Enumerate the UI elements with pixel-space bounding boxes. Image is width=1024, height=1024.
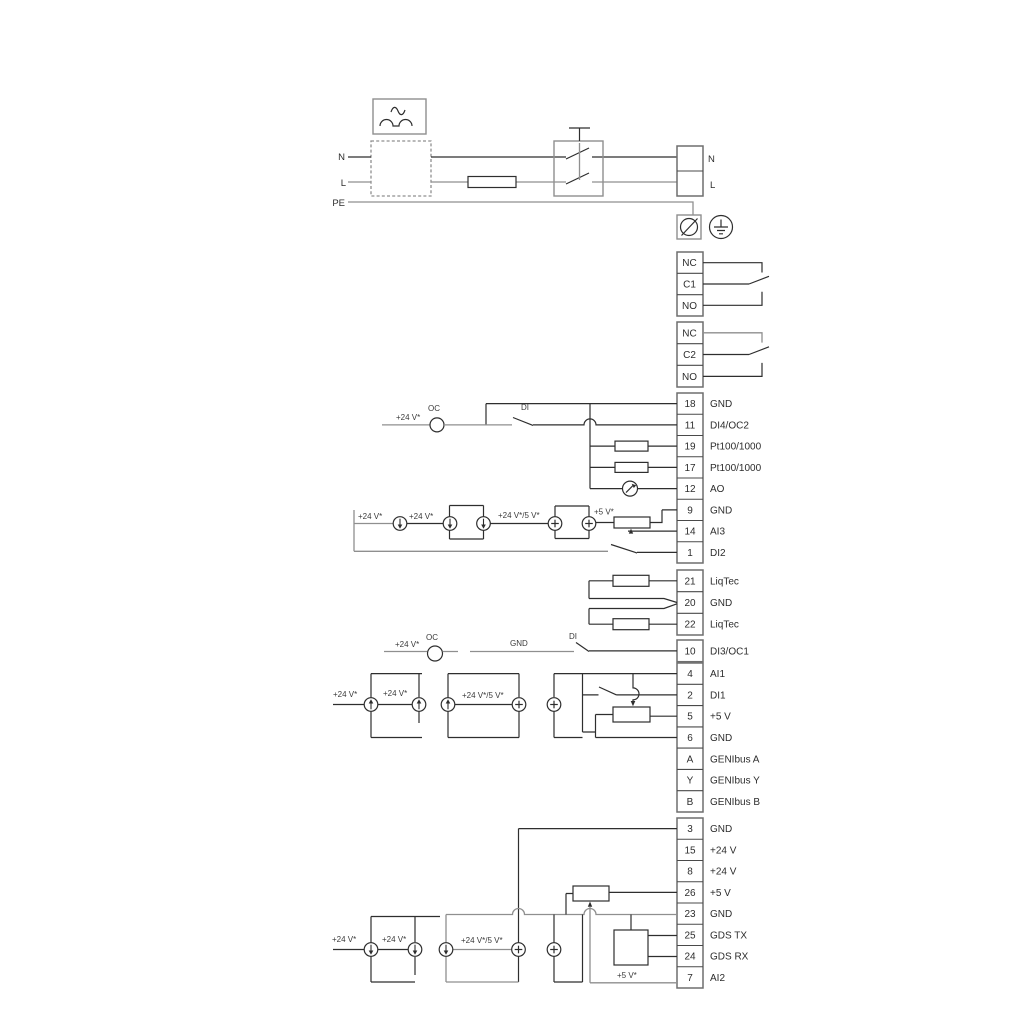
analog-output [590,481,677,496]
terminal-2: 2 [687,690,693,701]
gnd3-wire [519,829,678,982]
current-source-icon [477,517,491,531]
current-source-icon [441,698,455,712]
liqtec-sensor-2 [613,619,649,630]
terminal-9: 9 [687,505,693,516]
n-left-label: N [338,152,345,163]
v24-label: +24 V* [409,512,433,521]
ai2-gds-wiring: +24 V* +24 V* +24 V*/5 V* +5 V* [332,829,677,983]
l-switch-blade [566,173,589,184]
di-label: DI [569,632,577,641]
label-19: Pt100/1000 [710,442,762,453]
liqtec-sensor-1 [613,575,649,586]
terminal-strip-c: 3 15 8 26 23 25 24 7 GND +24 V +24 V +5 … [677,818,749,988]
n-right-label: N [708,154,715,165]
label-1: DI2 [710,548,726,559]
relay1-block: NC C1 NO [677,252,769,316]
label-22: LiqTec [710,620,739,631]
terminal-12: 12 [684,484,696,495]
terminal-Y: Y [687,776,694,787]
terminal-6: 6 [687,733,693,744]
v24-label-r1: +24 V* [396,413,420,422]
terminal-17: 17 [684,463,696,474]
terminal-1: 1 [687,548,693,559]
label-B: GENIbus B [710,797,760,808]
l-right-label: L [710,180,715,191]
current-source-icon [364,698,378,712]
v24-label: +24 V* [395,640,419,649]
label-3: GND [710,824,732,835]
rectified-wave-icon [380,120,412,126]
pe-label: PE [332,198,345,209]
setpoint-potentiometer [613,707,650,722]
n-switch-blade [566,148,589,159]
pt100-resistor-1 [615,441,648,451]
di1-switch [583,687,678,695]
relay2-block: NC C2 NO [677,322,769,387]
terminal-11: 11 [685,420,696,431]
v24-label: +24 V* [333,690,357,699]
terminal-strip-a: 18 11 19 17 12 9 14 1 GND DI4/OC2 Pt100/… [677,393,762,563]
relay2-no: NO [682,372,697,383]
label-20: GND [710,598,732,609]
diagram-canvas: N L PE N L NC C1 NO [0,0,1024,1024]
label-8: +24 V [710,867,737,878]
terminal-25: 25 [684,930,696,941]
oc-label-r1: OC [428,404,440,413]
label-5: +5 V [710,712,731,723]
label-10: DI3/OC1 [710,646,749,657]
label-A: GENIbus A [710,754,760,765]
voltage-source-icon [548,517,562,531]
gds-tx-rx-wires [648,936,677,957]
option-box-1 [333,917,440,983]
terminal-4: 4 [687,669,693,680]
relay2-no-wire [703,363,762,377]
v24-label: +24 V* [383,689,407,698]
terminal-24: 24 [684,952,696,963]
label-24: GDS RX [710,952,749,963]
voltage-source-icon [582,517,596,531]
v24-label: +24 V* [358,512,382,521]
label-7: AI2 [710,973,725,984]
pt100-resistor-2 [615,462,648,472]
relay1-nc: NC [682,258,696,269]
relay2-changeover-blade [703,347,769,355]
label-26: +5 V [710,888,731,899]
current-source-icon [443,517,457,531]
liqtec-strip: 21 20 22 LiqTec GND LiqTec [589,570,739,635]
supply-unit-dashed-box [371,141,431,196]
di3-switch [576,643,677,652]
voltage-source-icon [512,698,526,712]
label-14: AI3 [710,527,725,538]
label-21: LiqTec [710,576,739,587]
terminal-7: 7 [687,973,693,984]
ai1-wiper-wire [633,674,639,702]
di4-switch [513,418,677,426]
label-15: +24 V [710,845,737,856]
v24-5-label: +24 V*/5 V* [498,511,540,520]
relay1-c1: C1 [683,280,696,291]
relay2-nc-wire [703,333,762,343]
terminal-21: 21 [684,576,696,587]
label-4: AI1 [710,669,725,680]
v5-label: +5 V* [594,508,614,517]
gnd18-bus [486,404,677,425]
switch-handle [569,128,590,141]
relay2-nc: NC [682,328,696,339]
option-box-2 [448,674,519,738]
terminal-23: 23 [684,909,696,920]
gnd-label: GND [510,639,528,648]
terminal-14: 14 [684,527,696,538]
terminal-22: 22 [684,620,696,631]
option-box-2 [446,909,554,983]
di-label-r1: DI [521,403,529,412]
main-switch-box [554,141,603,196]
relay1-no: NO [682,301,697,312]
wiring-diagram-page: { "power": {"n_left":"N","l_left":"L","p… [0,0,1024,1024]
pe-wire [348,202,693,215]
label-23: GND [710,909,732,920]
relay2-c2: C2 [683,350,696,361]
terminal-20: 20 [684,598,696,609]
voltage-source-icon [547,698,561,712]
label-2: DI1 [710,690,726,701]
current-source-icon [439,943,453,957]
di2-switch [611,545,677,554]
terminal-26: 26 [684,888,696,899]
voltage-source-icon [547,943,561,957]
pot-wiper-arrow [588,902,592,907]
terminal-5: 5 [687,712,693,723]
setpoint-potentiometer [573,886,609,901]
di3-oc1-wiring: 10 DI3/OC1 +24 V* OC GND DI [384,632,749,662]
rectifier-symbol-box [373,99,426,134]
current-source-icon [408,943,422,957]
label-25: GDS TX [710,930,747,941]
open-collector-icon [430,418,444,432]
terminal-B: B [687,797,694,808]
current-source-icon [412,698,426,712]
v24-5-label: +24 V*/5 V* [462,691,504,700]
terminal-A: A [687,754,694,765]
label-11: DI4/OC2 [710,420,749,431]
terminal-18: 18 [684,399,696,410]
current-source-icon [364,943,378,957]
current-source-icon [393,517,407,531]
ai1-di1-wiring: +24 V* +24 V* +24 V*/5 V* [333,674,677,738]
label-18: GND [710,399,732,410]
oc-label: OC [426,633,438,642]
terminal-19: 19 [684,442,696,453]
voltage-source-icon [512,943,526,957]
terminal-3: 3 [687,824,693,835]
label-Y: GENIbus Y [710,776,760,787]
label-17: Pt100/1000 [710,463,762,474]
open-collector-icon [428,646,443,661]
v5-label: +5 V* [617,971,637,980]
terminal-10: 10 [684,646,696,657]
label-9: GND [710,505,732,516]
terminal-strip-b: 4 2 5 6 A Y B AI1 DI1 +5 V GND GENIbus A… [677,663,760,812]
label-6: GND [710,733,732,744]
v24-5-label: +24 V*/5 V* [461,936,503,945]
terminal-8: 8 [687,867,693,878]
l-left-label: L [341,178,346,189]
terminal-15: 15 [684,845,696,856]
gds-sensor-box [614,930,648,965]
relay1-changeover-blade [703,276,769,284]
fuse [468,177,516,188]
v24-label: +24 V* [382,935,406,944]
pt100-sensors [590,441,677,472]
pot-wiper-arrow [631,701,636,706]
v24-label: +24 V* [332,935,356,944]
ai3-source-options: +24 V* +24 V* +24 V*/5 V* +5 V* [354,506,677,554]
gnd23-wire [554,909,677,915]
label-12: AO [710,484,725,495]
sine-wave-icon [391,107,405,114]
mains-supply-section: N L PE N L [332,99,732,239]
setpoint-potentiometer [614,517,650,528]
